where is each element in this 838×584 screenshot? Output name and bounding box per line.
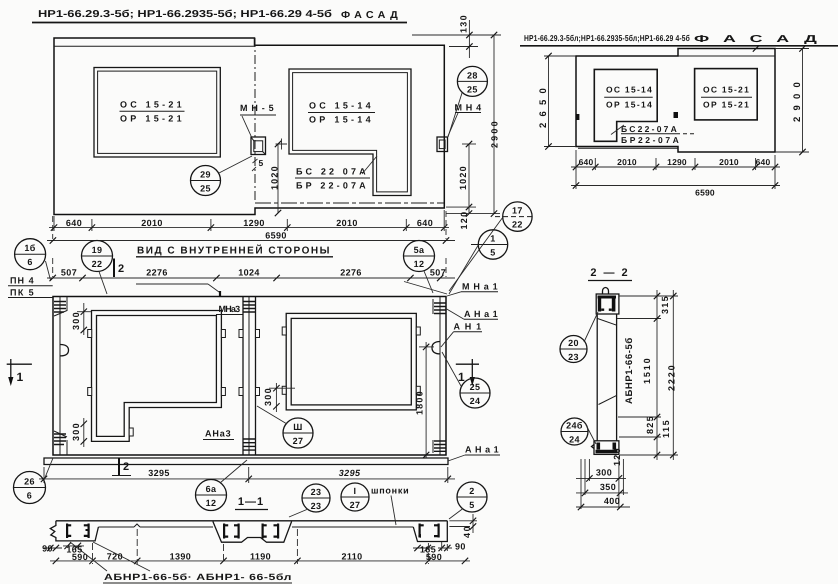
svg-text:23: 23 — [311, 501, 322, 511]
svg-text:1024: 1024 — [238, 268, 260, 278]
svg-text:90: 90 — [455, 542, 466, 552]
svg-text:МНа1: МНа1 — [462, 282, 498, 292]
svg-text:1020: 1020 — [270, 166, 280, 190]
svg-text:1: 1 — [17, 370, 24, 384]
svg-text:2010: 2010 — [336, 218, 358, 228]
svg-text:2900: 2900 — [490, 121, 500, 148]
svg-text:ФАСАД: ФАСАД — [341, 10, 402, 21]
svg-text:6: 6 — [27, 491, 32, 501]
svg-text:640: 640 — [756, 157, 771, 167]
svg-text:І: І — [354, 486, 357, 496]
svg-text:120: 120 — [459, 212, 469, 230]
svg-text:1020: 1020 — [458, 166, 468, 190]
svg-text:2 — 2: 2 — 2 — [590, 267, 629, 279]
svg-text:НР1-66.29.3-5б; НР1-66.2935-5: НР1-66.29.3-5б; НР1-66.2935-5б; НР1-66.2… — [38, 9, 332, 20]
svg-text:3295: 3295 — [339, 468, 361, 478]
svg-text:2: 2 — [469, 486, 474, 496]
svg-text:22: 22 — [92, 259, 103, 269]
svg-text:1290: 1290 — [243, 218, 265, 228]
svg-text:24б: 24б — [566, 421, 583, 431]
svg-text:2110: 2110 — [341, 552, 362, 562]
svg-text:5: 5 — [490, 248, 495, 258]
svg-text:507: 507 — [430, 268, 446, 278]
svg-text:МНа3: МНа3 — [219, 304, 241, 314]
svg-text:МН-5: МН-5 — [240, 103, 274, 113]
svg-text:5: 5 — [469, 500, 474, 510]
svg-text:1б: 1б — [24, 243, 35, 253]
svg-text:115: 115 — [661, 420, 671, 438]
svg-text:АНа3: АНа3 — [205, 429, 231, 439]
svg-text:3295: 3295 — [148, 468, 170, 478]
svg-text:12: 12 — [414, 259, 425, 269]
svg-text:300: 300 — [263, 388, 273, 406]
svg-text:1390: 1390 — [170, 552, 192, 562]
svg-text:2010: 2010 — [617, 157, 637, 167]
svg-text:640: 640 — [66, 218, 82, 228]
svg-text:6590: 6590 — [265, 231, 287, 241]
svg-text:БС 22 07А: БС 22 07А — [296, 167, 366, 177]
svg-text:29: 29 — [200, 170, 211, 180]
svg-text:12: 12 — [206, 498, 217, 508]
svg-text:ФАСАД: ФАСАД — [694, 34, 831, 45]
svg-text:ВИД С ВНУТРЕННЕЙ СТОРОНЫ: ВИД С ВНУТРЕННЕЙ СТОРОНЫ — [137, 244, 331, 257]
svg-text:22: 22 — [512, 220, 523, 230]
svg-text:120: 120 — [612, 448, 622, 466]
svg-text:2276: 2276 — [146, 268, 168, 278]
svg-text:НР1-66.29.3-5бл;НР1-66.2935-5б: НР1-66.29.3-5бл;НР1-66.2935-5бл;НР1-66.2… — [524, 33, 690, 43]
svg-text:1: 1 — [490, 234, 495, 244]
svg-text:130: 130 — [459, 15, 469, 33]
svg-text:640: 640 — [579, 157, 594, 167]
svg-text:25: 25 — [200, 184, 211, 194]
svg-text:2276: 2276 — [340, 268, 362, 278]
svg-text:1290: 1290 — [667, 157, 687, 167]
svg-text:26: 26 — [24, 477, 35, 487]
svg-text:25: 25 — [470, 382, 481, 392]
svg-text:24: 24 — [569, 435, 580, 445]
svg-text:1190: 1190 — [250, 552, 271, 562]
svg-text:2010: 2010 — [719, 157, 739, 167]
svg-text:20: 20 — [568, 338, 579, 348]
svg-text:315: 315 — [660, 296, 670, 314]
svg-text:350: 350 — [600, 482, 616, 492]
svg-text:17: 17 — [512, 206, 523, 216]
svg-text:27: 27 — [293, 436, 304, 446]
svg-text:ОС 15-21: ОС 15-21 — [703, 85, 749, 95]
svg-text:5: 5 — [259, 158, 264, 168]
svg-text:АН1: АН1 — [454, 322, 482, 332]
svg-text:2: 2 — [123, 461, 129, 473]
svg-text:Ш: Ш — [293, 422, 302, 432]
svg-text:6: 6 — [27, 257, 32, 267]
svg-text:90: 90 — [42, 544, 53, 554]
svg-text:19: 19 — [92, 245, 103, 255]
svg-text:ПН 4: ПН 4 — [10, 276, 34, 286]
svg-text:400: 400 — [604, 496, 620, 506]
svg-text:300: 300 — [71, 423, 81, 441]
svg-text:28: 28 — [467, 70, 478, 80]
svg-text:ОС 15-21: ОС 15-21 — [120, 100, 182, 110]
svg-text:1800: 1800 — [415, 391, 425, 415]
svg-text:27: 27 — [350, 500, 361, 510]
svg-text:825: 825 — [645, 416, 655, 434]
svg-text:ОС 15-14: ОС 15-14 — [309, 101, 371, 111]
svg-text:300: 300 — [596, 468, 612, 478]
svg-text:1510: 1510 — [642, 358, 652, 384]
svg-text:шпонки: шпонки — [371, 486, 409, 496]
svg-text:40: 40 — [462, 526, 472, 538]
svg-text:23: 23 — [568, 352, 579, 362]
svg-text:23: 23 — [311, 487, 322, 497]
svg-text:ОС 15-14: ОС 15-14 — [606, 85, 652, 95]
svg-text:АБНР1-66-5б: АБНР1-66-5б — [624, 337, 635, 404]
svg-text:24: 24 — [470, 396, 481, 406]
svg-text:1—1: 1—1 — [238, 496, 264, 508]
svg-text:2220: 2220 — [667, 365, 677, 391]
svg-text:25: 25 — [467, 84, 478, 94]
svg-text:ПК 5: ПК 5 — [10, 288, 34, 298]
svg-text:6590: 6590 — [695, 188, 715, 198]
svg-text:БР 22-07А: БР 22-07А — [296, 181, 366, 191]
svg-text:640: 640 — [417, 218, 433, 228]
svg-text:5а: 5а — [414, 245, 425, 255]
svg-text:6а: 6а — [206, 484, 217, 494]
svg-text:АБНР1-66-5б· АБНР1- 66-5бл: АБНР1-66-5б· АБНР1- 66-5бл — [104, 572, 292, 582]
svg-text:2: 2 — [118, 263, 124, 275]
svg-text:507: 507 — [61, 268, 77, 278]
svg-text:2010: 2010 — [141, 218, 163, 228]
svg-text:БС22-07А: БС22-07А — [621, 124, 677, 134]
svg-text:300: 300 — [71, 312, 81, 330]
